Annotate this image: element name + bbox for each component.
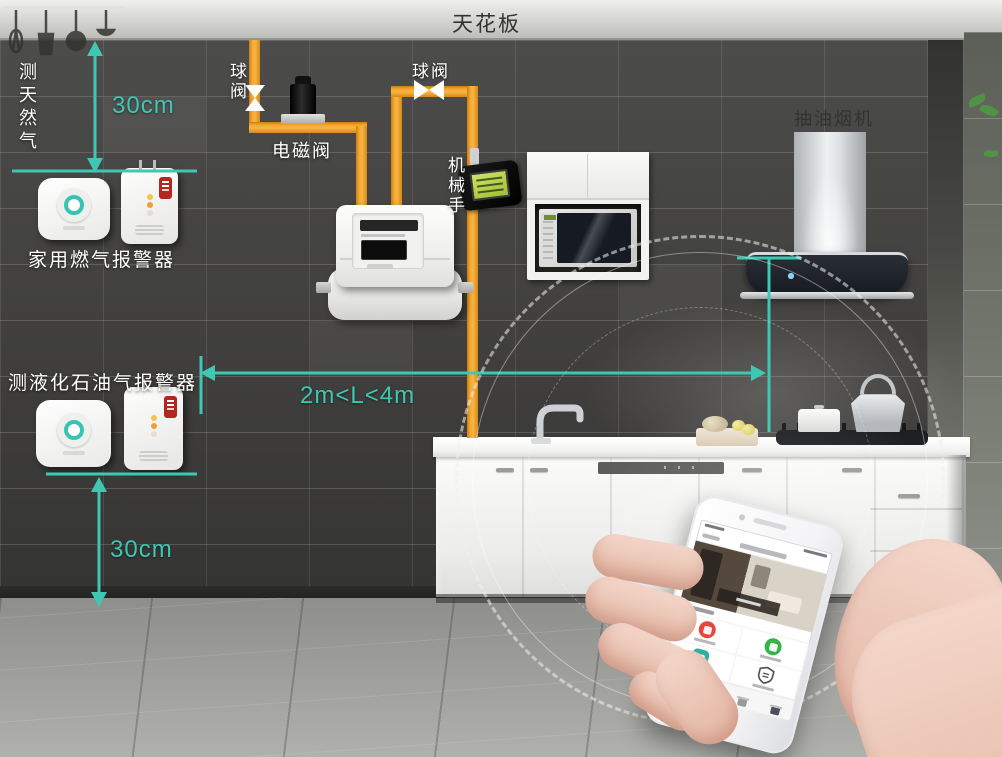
bottom-clearance-value: 30cm <box>110 536 173 564</box>
cabinet-handle <box>530 468 548 472</box>
gas-meter-label-strip <box>361 234 405 237</box>
gas-meter-panel <box>352 213 424 269</box>
ball-valve-right-label: 球阀 <box>412 57 450 82</box>
ball-valve-left-label: 球阀 <box>224 62 249 102</box>
gas-meter-fitting <box>316 282 331 293</box>
solenoid-valve-flange <box>281 114 325 124</box>
alarm-wire <box>139 160 142 170</box>
phone-speaker <box>753 517 787 530</box>
natural-gas-test-label: 测天然气 <box>14 62 40 154</box>
alarm-status-lights <box>147 194 153 216</box>
tile-highlight <box>310 321 412 376</box>
gas-pipe-horizontal-right <box>391 86 478 97</box>
alarm-logo <box>63 226 85 230</box>
range-hood-label: 抽油烟机 <box>794 105 874 131</box>
cabinet-doors <box>527 152 649 200</box>
lpg-alarm-label: 测液化石油气报警器 <box>8 368 197 395</box>
distance-range-value: 2m<L<4m <box>300 382 415 410</box>
lpg-alarm-rect <box>124 387 183 470</box>
gas-pipe-meter-inlet <box>356 126 367 211</box>
microwave-display <box>544 215 556 220</box>
range-hood <box>746 252 908 296</box>
gas-pipe-drop-to-stove <box>467 86 478 438</box>
microwave-door <box>557 213 631 263</box>
profile-tab-icon <box>769 704 782 709</box>
alarm-red-badge <box>164 396 177 418</box>
gas-meter-counter <box>360 220 418 231</box>
solenoid-valve-label: 电磁阀 <box>272 137 332 163</box>
mechanical-hand-label: 机械手 <box>442 156 467 216</box>
range-hood-rim <box>740 292 914 299</box>
household-gas-alarm-label: 家用燃气报警器 <box>28 245 175 272</box>
solenoid-valve-device <box>290 84 316 118</box>
mechanical-hand-device <box>457 160 522 212</box>
gas-meter-fitting <box>458 282 473 293</box>
alarm-red-icon <box>697 619 718 640</box>
alarm-logo <box>63 451 85 455</box>
banner-furniture <box>750 564 771 589</box>
microwave <box>539 209 637 267</box>
alarm-ring-indicator <box>57 188 91 222</box>
kitchen-gas-safety-diagram: 天花板 测天然气 30cm 球阀 球阀 电磁阀 机械手 抽油烟机 家用燃气报警器… <box>0 0 1002 757</box>
natural-gas-alarm-square <box>38 178 110 240</box>
gas-meter-buttons <box>367 264 393 269</box>
cabinet-door-seam <box>587 154 588 198</box>
lpg-alarm-square <box>36 400 111 467</box>
gas-pipe-meter-outlet <box>391 92 402 210</box>
alarm-ring-indicator <box>57 413 91 447</box>
cabinet-handle <box>496 468 514 472</box>
alarm-vent <box>139 451 169 461</box>
top-clearance-value: 30cm <box>112 92 175 120</box>
security-shield-icon <box>755 664 776 686</box>
gray-tab-icon <box>736 696 749 701</box>
gas-meter-lcd <box>361 240 407 260</box>
microwave-control-panel <box>541 213 555 263</box>
alarm-red-badge <box>159 177 172 199</box>
range-hood-lights <box>788 273 844 279</box>
natural-gas-alarm-rect <box>121 168 178 244</box>
mechanical-hand-display <box>469 169 510 201</box>
wall-cabinet <box>527 152 649 280</box>
ceiling-label: 天花板 <box>452 8 521 38</box>
monitor-green-icon <box>763 636 784 657</box>
alarm-vent <box>135 225 164 235</box>
gas-pipe-vertical-left <box>249 40 260 132</box>
alarm-status-lights <box>151 415 157 437</box>
range-hood-chimney <box>794 132 866 256</box>
alarm-wire <box>153 160 156 170</box>
phone-camera <box>738 514 745 521</box>
